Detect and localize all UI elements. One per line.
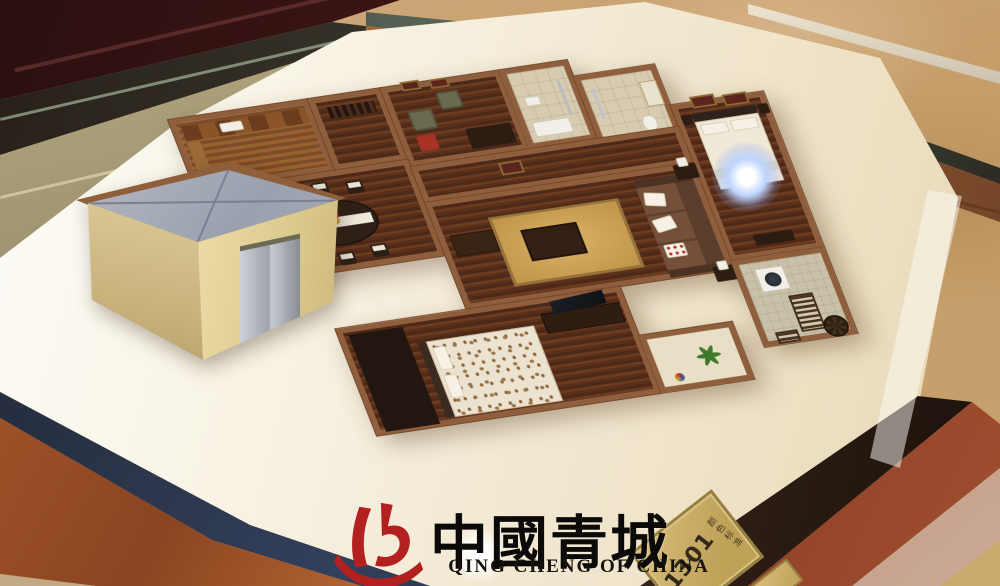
tv-bench [449, 229, 500, 257]
laundry-balcony [731, 247, 858, 347]
towel-bar [591, 89, 605, 119]
throw-pillow [643, 192, 666, 206]
hallway-art-frame [498, 160, 525, 176]
armchair [435, 89, 464, 110]
qingcheng-logo-icon [330, 500, 428, 586]
table-lamp [716, 260, 730, 271]
bedroom-art-frame [689, 94, 718, 109]
photo-architectural-model: 1301 颜色标准 中國青城 QING CHENG OF CHINA [0, 0, 1000, 586]
shaft-cross-line [197, 170, 229, 243]
armchair [407, 108, 439, 131]
nightstand [757, 103, 771, 114]
towel-bar [556, 80, 572, 115]
bedroom-art-frame [721, 91, 750, 106]
dining-chair [369, 243, 390, 258]
flash-glare [712, 142, 782, 212]
red-accent-chair [416, 134, 440, 152]
dining-chair [345, 180, 366, 195]
wall-art-frame [428, 77, 450, 89]
lounge-chair [775, 329, 802, 344]
wall-art-frame [400, 80, 422, 92]
entry-mat [327, 100, 378, 118]
pinwheel-decor [674, 372, 687, 382]
bathroom-sink [524, 95, 542, 106]
vanity [639, 80, 665, 107]
round-table [820, 313, 853, 338]
desk [465, 122, 517, 148]
dining-chair [337, 251, 358, 266]
brand-name-english: QING CHENG OF CHINA [434, 556, 724, 578]
palm-plant [693, 343, 726, 368]
lounge-chair [788, 292, 826, 332]
bathtub [531, 117, 574, 137]
bedroom-bench [753, 229, 796, 246]
brand-watermark: 中國青城 QING CHENG OF CHINA [330, 494, 750, 586]
